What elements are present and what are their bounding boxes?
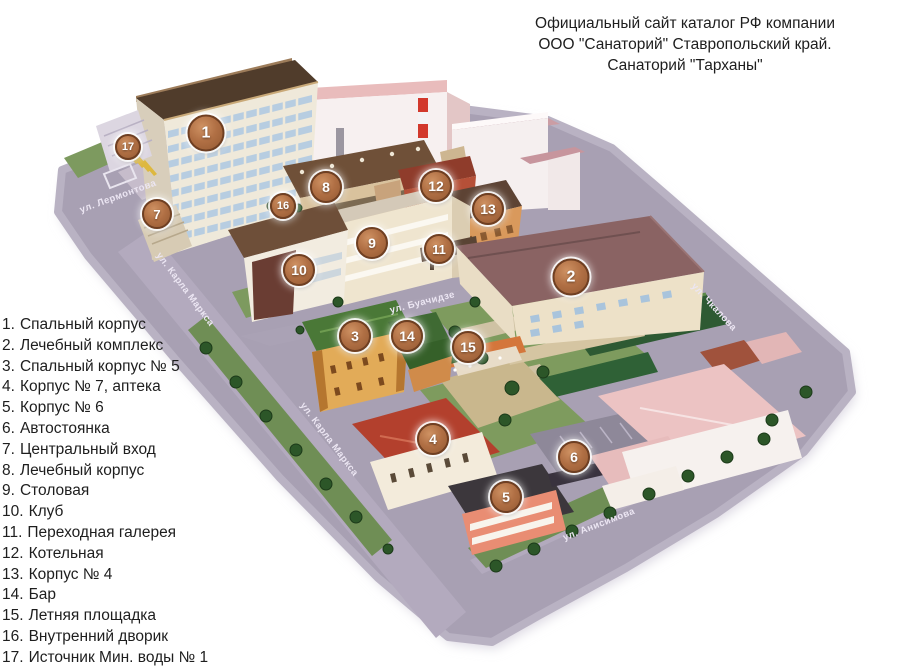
site-title-line: Санаторий "Тарханы" bbox=[470, 55, 900, 76]
map-marker-17: 17 bbox=[115, 134, 141, 160]
map-marker-15: 15 bbox=[452, 331, 484, 363]
legend-item-17: 17.Источник Мин. воды № 1 bbox=[2, 648, 208, 666]
map-marker-11: 11 bbox=[424, 234, 454, 264]
legend-item-16: 16.Внутренний дворик bbox=[2, 627, 208, 648]
legend-item-15: 15.Летняя площадка bbox=[2, 606, 208, 627]
map-marker-12: 12 bbox=[420, 170, 452, 202]
map-marker-6: 6 bbox=[558, 441, 590, 473]
map-marker-7: 7 bbox=[142, 199, 172, 229]
map-marker-9: 9 bbox=[356, 227, 388, 259]
legend-item-12: 12.Котельная bbox=[2, 544, 208, 565]
legend-item-10: 10.Клуб bbox=[2, 502, 208, 523]
legend-item-14: 14.Бар bbox=[2, 585, 208, 606]
map-marker-14: 14 bbox=[391, 320, 423, 352]
legend-item-7: 7.Центральный вход bbox=[2, 440, 208, 461]
legend-item-5: 5.Корпус № 6 bbox=[2, 398, 208, 419]
legend-item-13: 13.Корпус № 4 bbox=[2, 565, 208, 586]
legend-item-8: 8.Лечебный корпус bbox=[2, 461, 208, 482]
map-marker-5: 5 bbox=[490, 481, 522, 513]
site-title-line: Официальный сайт каталог РФ компании bbox=[470, 13, 900, 34]
legend-item-4: 4.Корпус № 7, аптека bbox=[2, 377, 208, 398]
map-marker-16: 16 bbox=[270, 193, 296, 219]
map-marker-3: 3 bbox=[339, 320, 371, 352]
legend: 1.Спальный корпус 2.Лечебный комплекс 3.… bbox=[2, 315, 208, 666]
legend-item-9: 9.Столовая bbox=[2, 481, 208, 502]
legend-item-11: 11.Переходная галерея bbox=[2, 523, 208, 544]
map-marker-4: 4 bbox=[417, 423, 449, 455]
site-title: Официальный сайт каталог РФ компании ООО… bbox=[470, 13, 900, 76]
legend-item-1: 1.Спальный корпус bbox=[2, 315, 208, 336]
legend-item-3: 3.Спальный корпус № 5 bbox=[2, 357, 208, 378]
legend-item-2: 2.Лечебный комплекс bbox=[2, 336, 208, 357]
page: ул. Лермонтова ул. Карла Маркса ул. Карл… bbox=[0, 0, 900, 666]
map-marker-8: 8 bbox=[310, 171, 342, 203]
map-marker-13: 13 bbox=[472, 193, 504, 225]
map-marker-1: 1 bbox=[188, 115, 225, 152]
map-marker-2: 2 bbox=[553, 259, 590, 296]
map-marker-10: 10 bbox=[283, 254, 315, 286]
site-title-line: ООО "Санаторий" Ставропольский край. bbox=[470, 34, 900, 55]
legend-item-6: 6.Автостоянка bbox=[2, 419, 208, 440]
